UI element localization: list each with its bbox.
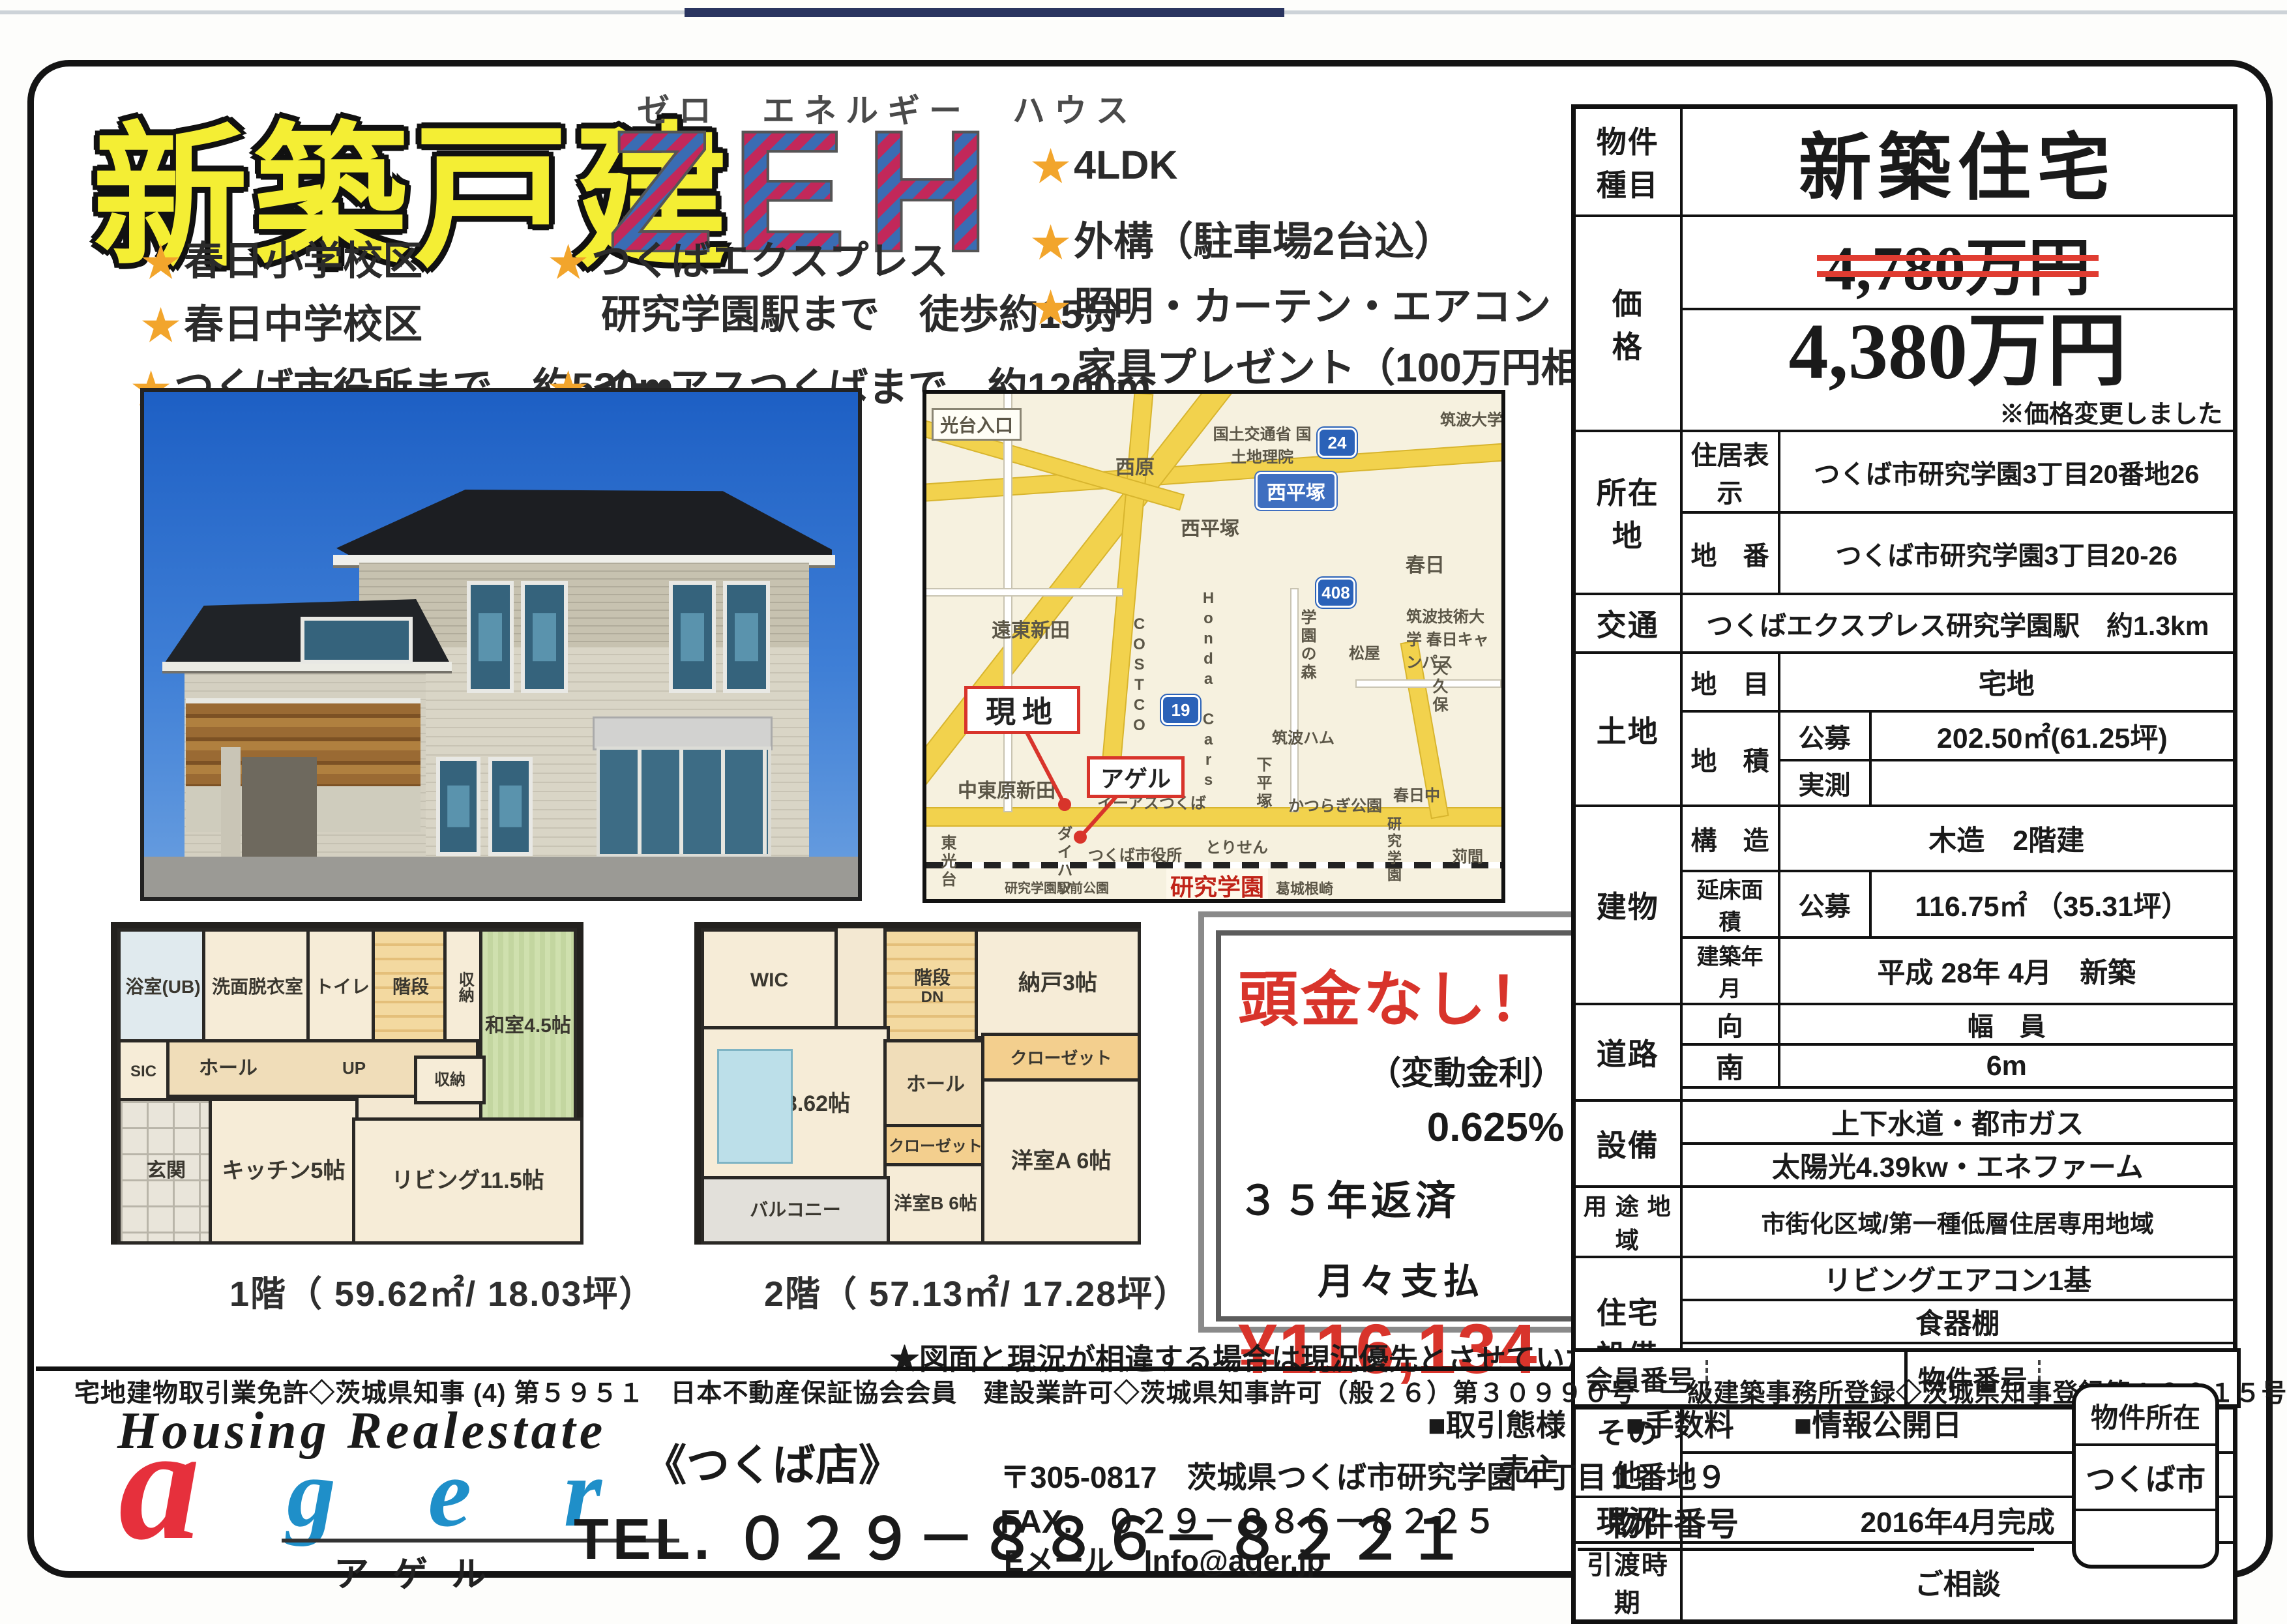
room-genkan: 玄関	[117, 1098, 215, 1245]
room-sic: SIC	[117, 1039, 170, 1104]
room-kitchen: キッチン5帖	[209, 1098, 359, 1245]
scan-artifact-navy	[685, 8, 1284, 17]
property-location-box: 物件所在 つくば市	[2072, 1383, 2219, 1569]
location-label: 所在地	[1574, 431, 1681, 594]
payment-box: 頭金なし！ （変動金利） 0.625% ３５年返済 月々支払 ¥116,134	[1198, 911, 1579, 1333]
room-living: リビング11.5帖	[352, 1117, 583, 1245]
dn-label: DN	[921, 988, 944, 1007]
star-icon: ★	[549, 238, 587, 286]
price-label: 価 格	[1574, 216, 1681, 431]
no-downpayment: 頭金なし！	[1238, 951, 1564, 1038]
floorplan-1f-caption: 1階（ 59.62㎡/ 18.03坪）	[229, 1265, 655, 1316]
room-washroom: 洗面脱衣室	[202, 928, 313, 1046]
structure: 木造 2階建	[1779, 806, 2235, 871]
sliding-glass-door	[597, 746, 771, 857]
room-hall: ホール	[883, 1039, 988, 1130]
property-no-underline	[1578, 1548, 2034, 1551]
window	[521, 581, 568, 693]
address-display: つくば市研究学園3丁目20番地26	[1779, 431, 2235, 512]
entrance-porch	[242, 757, 317, 859]
property-no-footer: 物件番号	[1608, 1498, 1739, 1545]
room-closet: 収納	[414, 1056, 486, 1104]
room-toilet: トイレ	[306, 928, 378, 1046]
fax-number: FAX. ０２９－８８６－８２２５	[1000, 1496, 1496, 1543]
floorplan-2f-caption: 2階（ 57.13㎡/ 17.28坪）	[764, 1265, 1190, 1316]
equipment-1: リビングエアコン1基	[1681, 1257, 2235, 1300]
map-leader-lines	[926, 394, 1501, 899]
roof	[336, 490, 832, 565]
room-stairs: 階段	[372, 928, 450, 1046]
genchi-marker: 現地	[964, 686, 1080, 734]
floorplan-1f: 浴室(UB) 洗面脱衣室 トイレ 階段 収納 和室4.5帖 ホールUP SIC …	[111, 922, 583, 1245]
porch-pillar	[221, 747, 241, 859]
star-icon: ★	[1031, 284, 1070, 332]
road-direction: 南	[1681, 1044, 1779, 1087]
room-closet: クローゼット	[981, 1033, 1141, 1085]
store-name: 《つくば店》	[643, 1430, 902, 1493]
payment-box-inner: 頭金なし！ （変動金利） 0.625% ３５年返済 月々支払 ¥116,134	[1216, 930, 1582, 1321]
feature-item: ★春日中学校区	[141, 291, 422, 351]
built-date: 平成 28年 4月 新築	[1779, 937, 2235, 1004]
star-icon: ★	[141, 238, 180, 286]
window	[723, 581, 770, 693]
room-bath: 浴室(UB)	[117, 928, 209, 1046]
zoning: 市街化区域/第一種低層住居専用地域	[1681, 1187, 2235, 1257]
feature-item: ★4LDK	[1031, 141, 1177, 192]
current-price: 4,380万円	[1689, 310, 2227, 394]
email-address: Eメール Info@ager.jp	[1004, 1537, 1325, 1580]
variable-rate: （変動金利）	[1238, 1047, 1564, 1094]
star-icon: ★	[141, 301, 180, 349]
land-area: 202.50㎡(61.25坪)	[1870, 711, 2235, 760]
feature-item: ★外構（駐車場2台込）	[1031, 209, 1454, 268]
room-shinshitsu: 寝室8.62帖	[701, 1026, 890, 1183]
location-box-title: 物件所在	[2076, 1387, 2215, 1446]
equipment-2: 食器棚	[1681, 1300, 2235, 1343]
strike-line	[1817, 255, 2099, 261]
window	[436, 757, 480, 856]
floor-area: 116.75㎡ （35.31坪）	[1870, 871, 2235, 937]
ager-kana: アゲル	[334, 1545, 510, 1597]
transport: つくばエクスプレス研究学園駅 約1.3km	[1681, 594, 2235, 653]
window	[467, 581, 514, 693]
room-yoshitsu-b: 洋室B 6帖	[883, 1163, 988, 1245]
deal-type-row: ■取引態様 ■手数料 ■情報公開日	[1428, 1402, 1962, 1445]
shutter-box	[593, 716, 773, 750]
location-box-city: つくば市	[2076, 1446, 2215, 1511]
property-type-label: 物件種目	[1574, 107, 1681, 216]
window	[669, 581, 716, 693]
star-icon: ★	[1031, 218, 1070, 267]
floorplan-2f: WIC 階段DN 納戸3帖 寝室8.62帖 ホール クローゼット クローゼット …	[694, 922, 1141, 1245]
strike-line	[1817, 271, 2099, 277]
window	[488, 757, 533, 856]
ager-marker: アゲル	[1087, 756, 1185, 798]
room-wic: WIC	[701, 928, 838, 1033]
deal-type-value: 売主	[1499, 1446, 1559, 1489]
monthly-label: 月々支払	[1238, 1252, 1564, 1305]
road-width: 6m	[1779, 1044, 2235, 1087]
room-stairs: 階段DN	[883, 928, 981, 1046]
lot-number: つくば市研究学園3丁目20-26	[1779, 512, 2235, 594]
flyer-page: 新築戸建 ゼロ エネルギー ハウス ZEH ★春日小学校区 ★春日中学校区 ★つ…	[27, 60, 2273, 1578]
ground	[144, 857, 858, 897]
feature-item: ★照明・カーテン・エアコン	[1031, 274, 1551, 333]
up-label: UP	[342, 1059, 366, 1078]
loan-years: ３５年返済	[1238, 1168, 1564, 1226]
bed	[717, 1049, 793, 1164]
area-map: 光台入口 西原 国土交通省 国土地理院 24 西平塚 西平塚 春日 筑波大学 4…	[922, 390, 1505, 903]
old-price: 4,780万円	[1825, 217, 2091, 308]
measured-area	[1870, 760, 2235, 806]
utilities-1: 上下水道・都市ガス	[1681, 1100, 2235, 1144]
room-balcony: バルコニー	[701, 1176, 890, 1245]
utilities-2: 太陽光4.39kw・エネファーム	[1681, 1144, 2235, 1187]
postal-address: 〒305-0817 茨城県つくば市研究学園４丁目１番地９	[1000, 1454, 1726, 1497]
land-category: 宅地	[1779, 653, 2235, 711]
property-type: 新築住宅	[1799, 128, 2117, 209]
price-change-note: ※価格変更しました	[1689, 394, 2227, 430]
feature-item: ★春日小学校区	[141, 228, 422, 288]
ager-logo-a: a	[119, 1419, 200, 1549]
interest-rate: 0.625%	[1238, 1104, 1564, 1151]
house-photo	[140, 388, 862, 901]
footer-divider	[36, 1366, 1571, 1371]
room-yoshitsu-a: 洋室A 6帖	[981, 1078, 1141, 1245]
room-nando: 納戸3帖	[975, 928, 1141, 1039]
star-icon: ★	[1031, 142, 1070, 190]
room-washitsu: 和室4.5帖	[479, 928, 577, 1124]
window	[301, 617, 413, 664]
feature-item: ★つくばエクスプレス	[549, 228, 948, 288]
